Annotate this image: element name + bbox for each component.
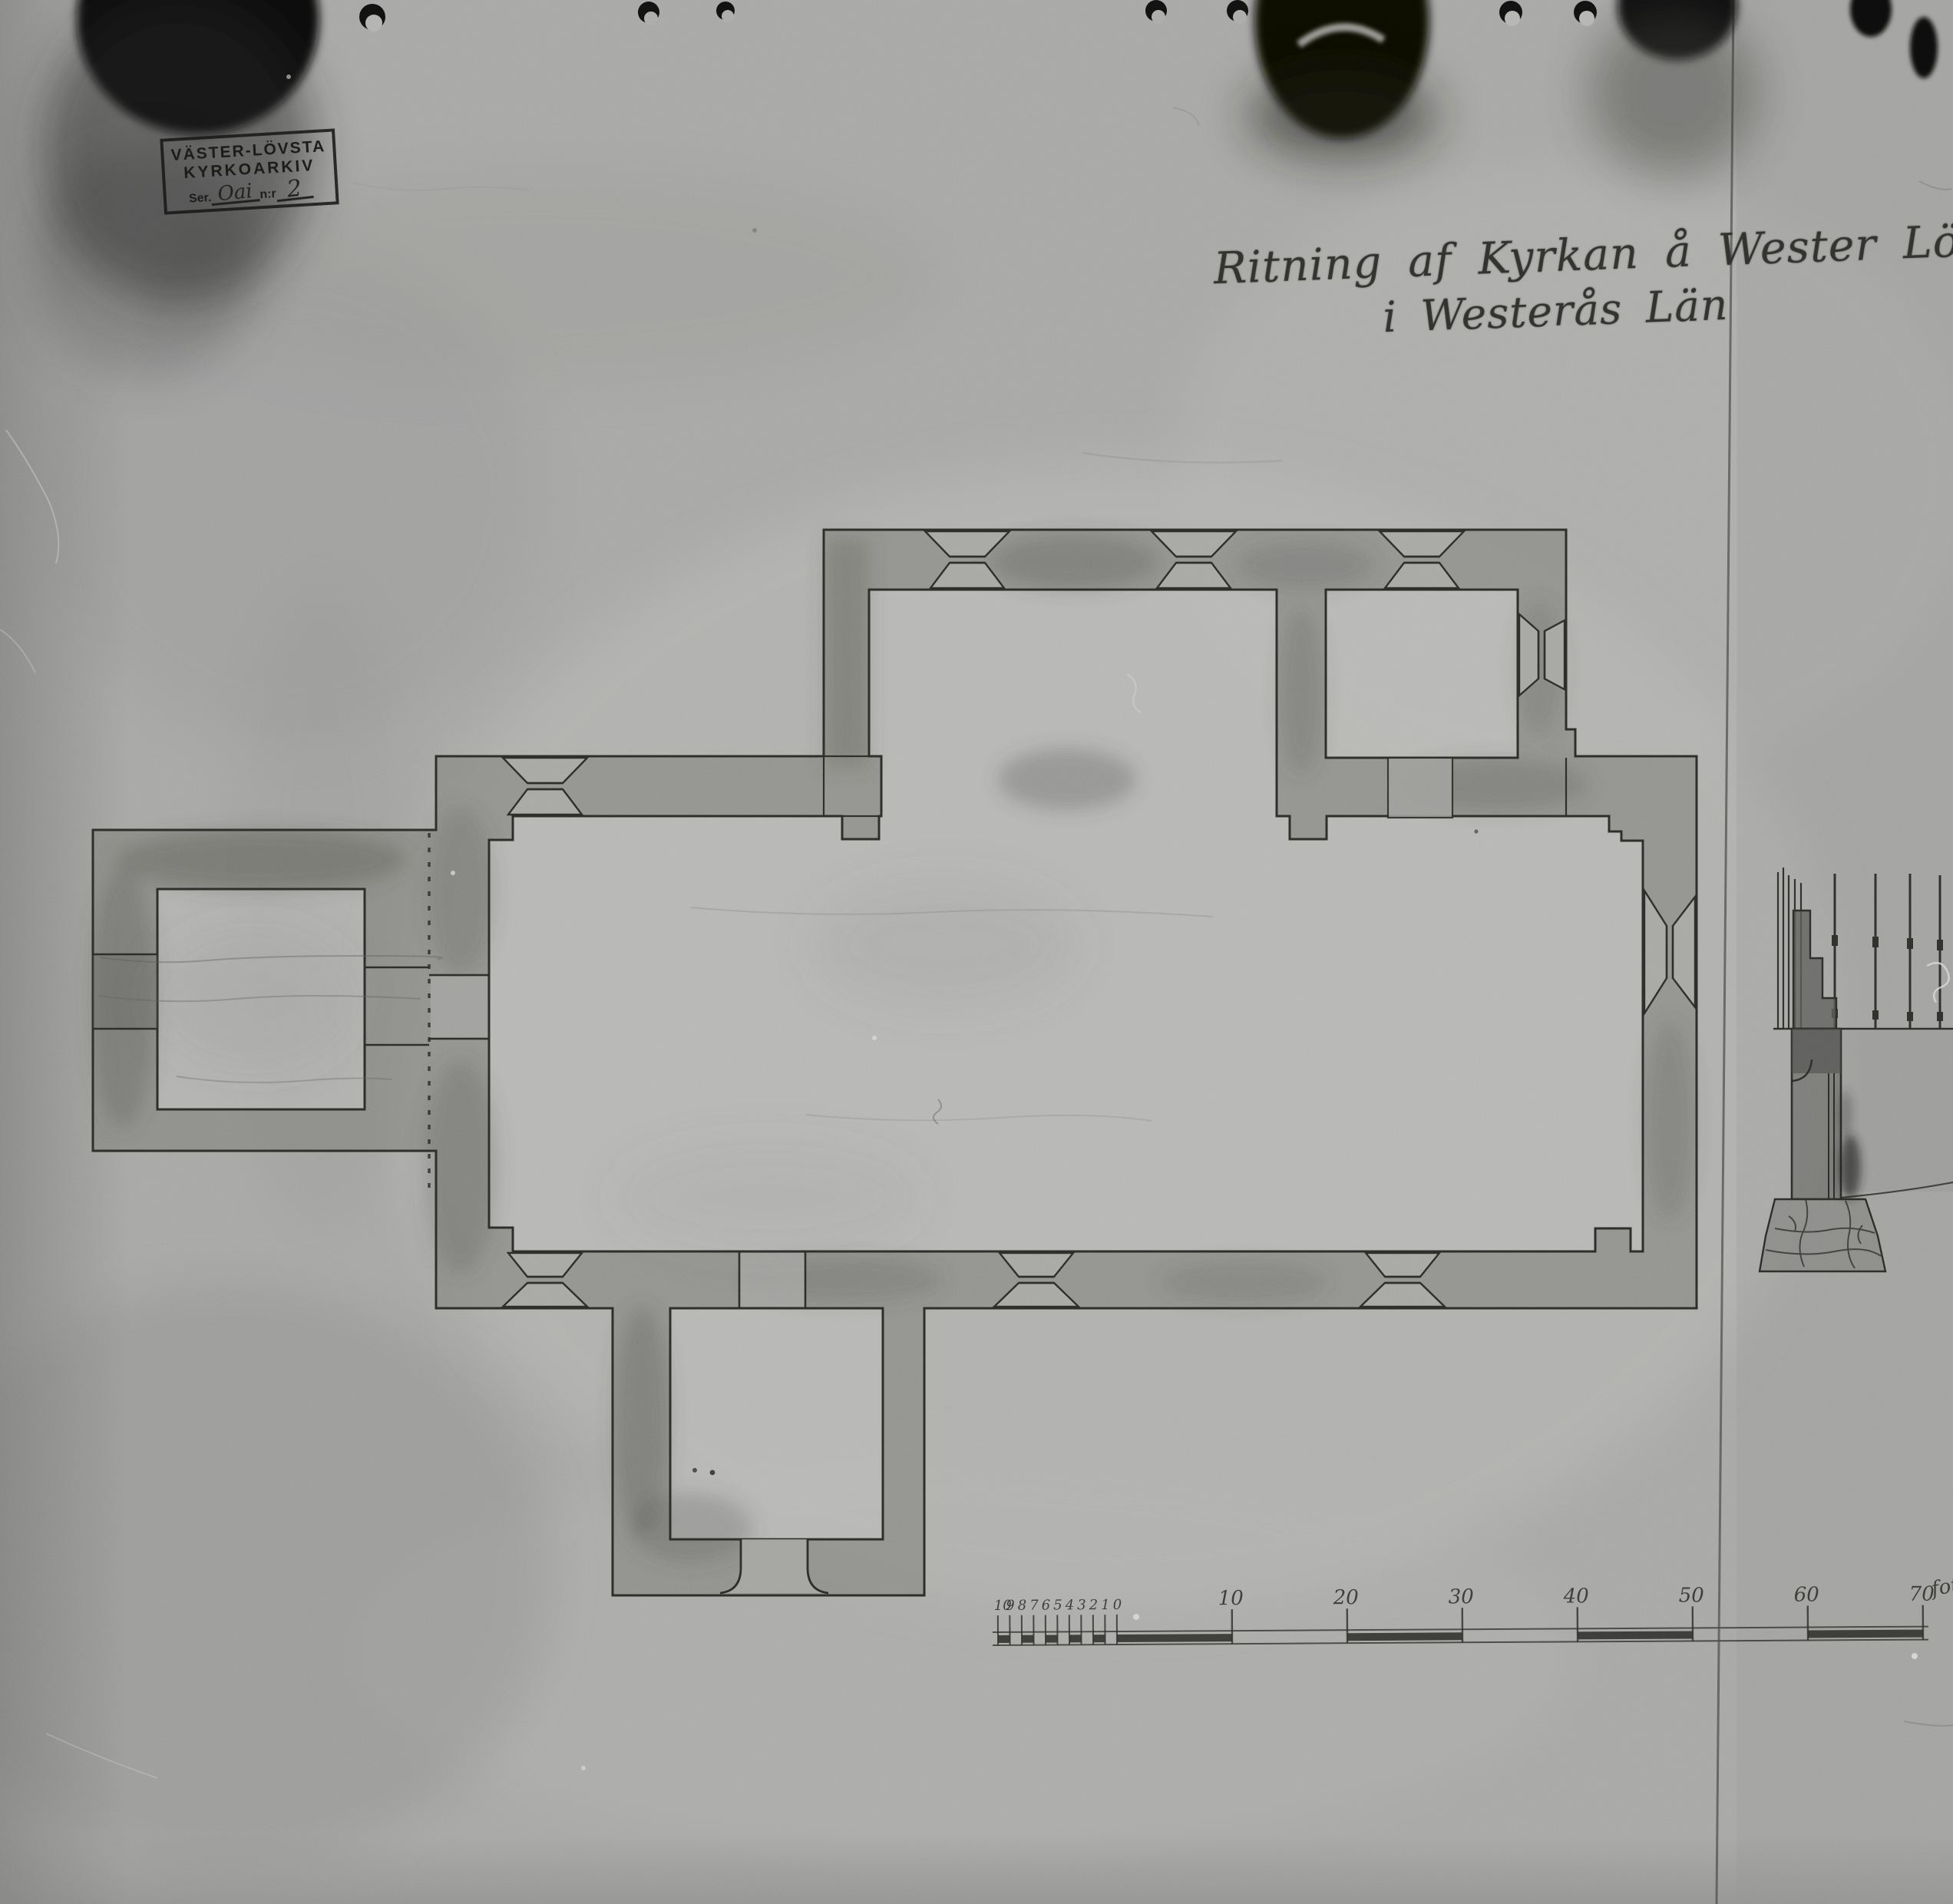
stamp-number-value: 2 [275, 179, 313, 202]
stamp-number-label: n:r [259, 187, 276, 202]
stamp-series-label: Ser. [189, 191, 212, 207]
archive-stamp: VÄSTER-LÖVSTA KYRKOARKIV Ser. Oai n:r 2 [160, 128, 339, 214]
stamp-series-value: Oai [210, 182, 260, 206]
stamp-series-row: Ser. Oai n:r 2 [169, 179, 332, 208]
archival-photo-of-church-drawing: 10987654321010203040506070fot. [0, 0, 1953, 1904]
